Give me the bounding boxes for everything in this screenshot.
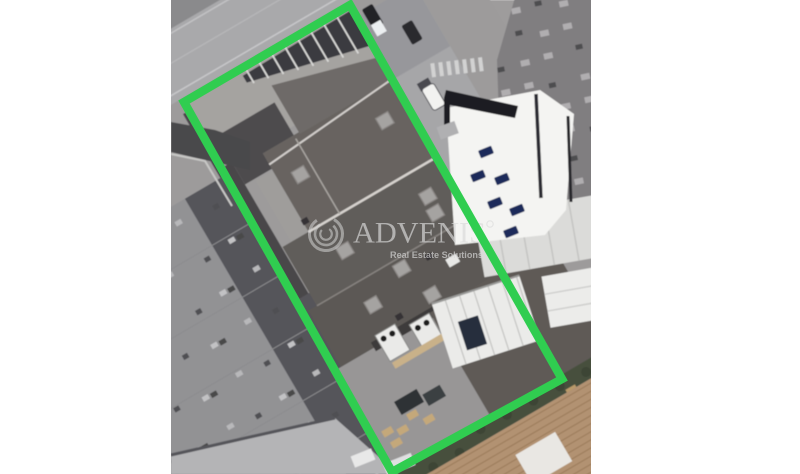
svg-text:Real Estate Solutions: Real Estate Solutions [390, 250, 483, 261]
svg-text:ADVENIS: ADVENIS [353, 217, 486, 250]
